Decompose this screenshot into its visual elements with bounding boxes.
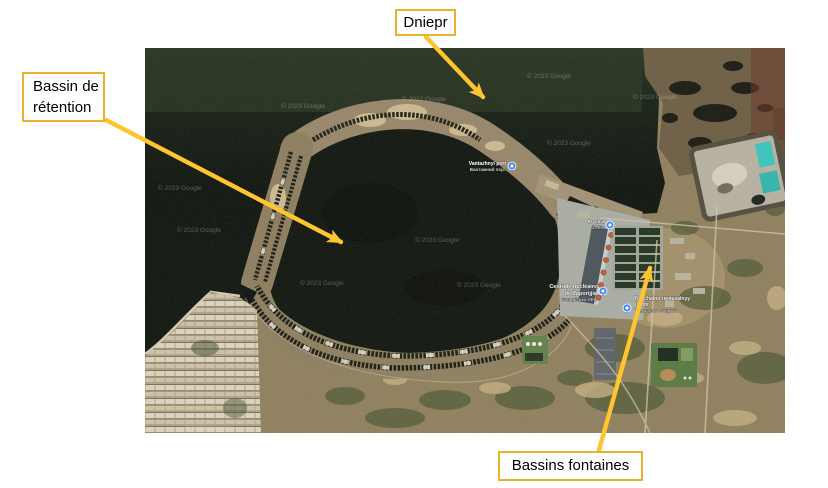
annotation-box-dniepr: Dniepr	[395, 9, 456, 36]
port-label-cyrillic: Вантажний порт	[470, 166, 507, 172]
google-watermark: © 2023 Google	[177, 226, 221, 234]
training-center-label-3: Тимчасово закрито	[635, 308, 678, 313]
annotation-box-bassin-retention: Bassin de rétention	[22, 72, 105, 122]
image-grain	[145, 48, 785, 433]
google-watermark: © 2023 Google	[415, 236, 459, 244]
google-watermark: © 2023 Google	[527, 72, 571, 80]
annotation-label-bassin-line2: rétention	[33, 97, 91, 118]
google-watermark: © 2023 Google	[402, 95, 446, 103]
google-watermark: © 2023 Google	[457, 281, 501, 289]
google-watermark: © 2023 Google	[281, 102, 325, 110]
annotation-box-bassins-fontaines: Bassins fontaines	[498, 451, 643, 481]
slide: © 2023 Google © 2023 Google © 2023 Googl…	[0, 0, 828, 488]
google-watermark: © 2023 Google	[633, 93, 677, 101]
annotation-label-dniepr: Dniepr	[403, 13, 447, 33]
google-watermark: © 2023 Google	[185, 424, 229, 432]
berth-label-2: ZAES	[592, 225, 604, 230]
annotation-label-bassin-line1: Bassin de	[33, 76, 99, 97]
google-watermark: © 2023 Google	[158, 184, 202, 192]
google-watermark: © 2023 Google	[300, 279, 344, 287]
plant-label-cyrillic: Запорізька АЕС	[562, 297, 598, 302]
plant-label: Centrale nucléaire	[549, 284, 597, 290]
satellite-image: © 2023 Google © 2023 Google © 2023 Googl…	[145, 48, 785, 433]
google-watermark: © 2023 Google	[547, 139, 591, 147]
berth-label: Prychal	[588, 219, 604, 224]
annotation-label-fontaines: Bassins fontaines	[512, 456, 630, 476]
satellite-scene: © 2023 Google © 2023 Google © 2023 Googl…	[145, 48, 785, 433]
